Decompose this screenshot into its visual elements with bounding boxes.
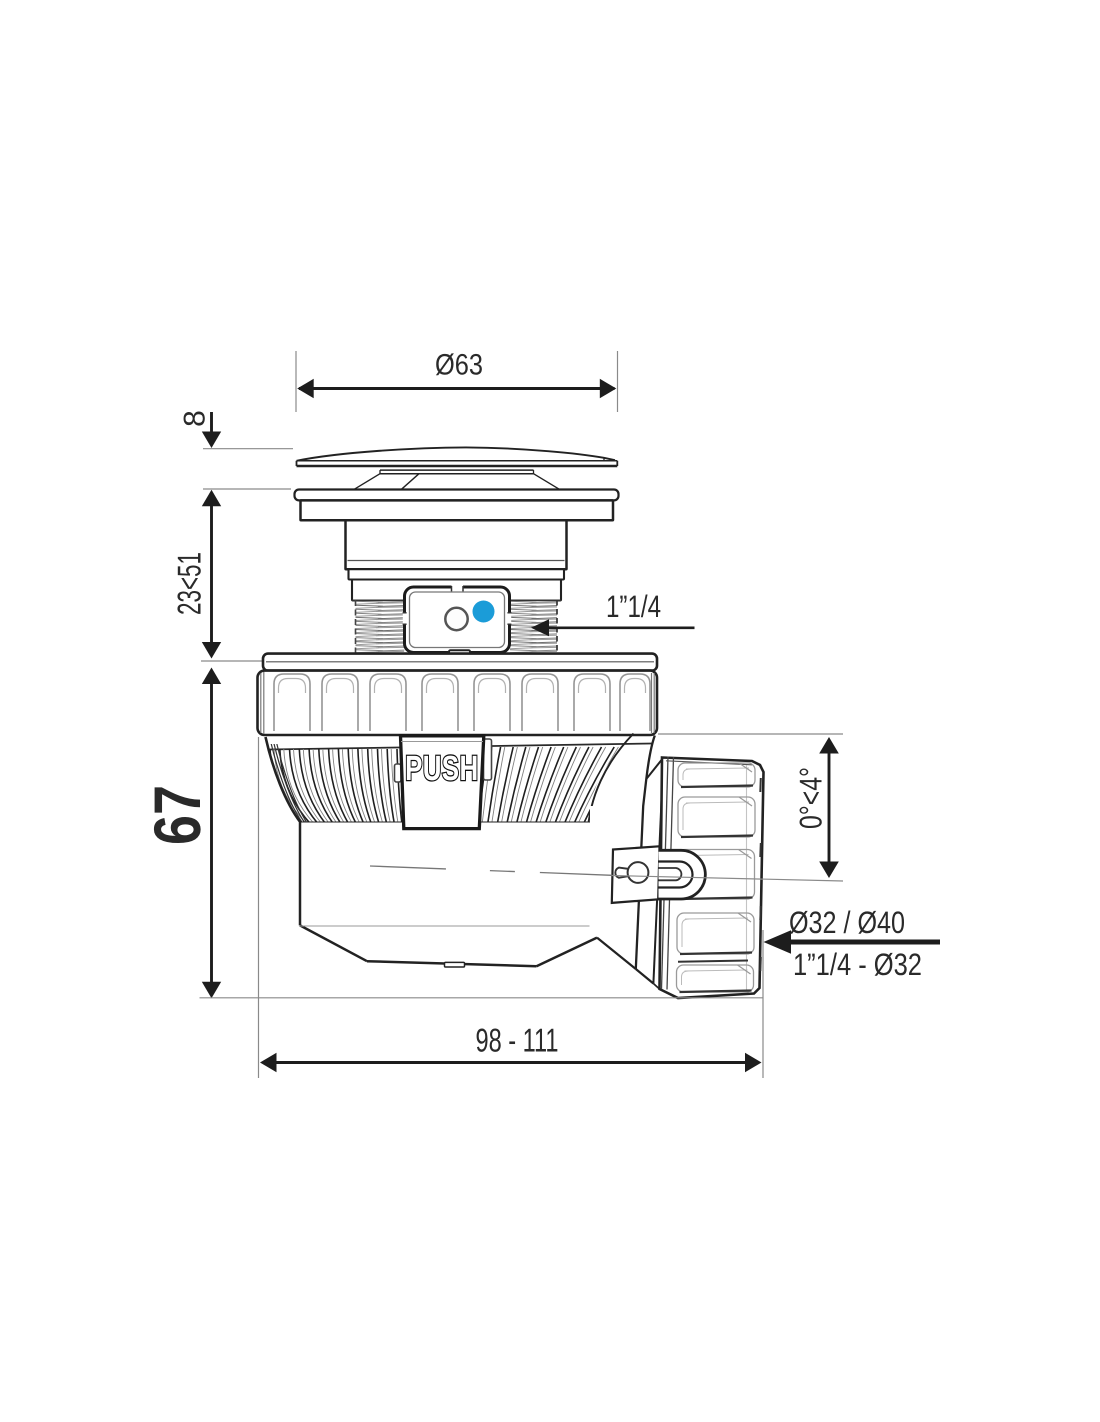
svg-text:67: 67: [140, 785, 214, 845]
svg-text:23<51: 23<51: [171, 552, 208, 615]
svg-text:0°<4°: 0°<4°: [793, 767, 829, 829]
svg-text:1”1/4: 1”1/4: [606, 589, 661, 624]
svg-text:8: 8: [179, 410, 212, 427]
svg-text:98 - 111: 98 - 111: [476, 1022, 559, 1059]
svg-text:Ø63: Ø63: [435, 349, 483, 382]
svg-text:1”1/4 - Ø32: 1”1/4 - Ø32: [793, 947, 922, 982]
svg-text:Ø32 / Ø40: Ø32 / Ø40: [789, 905, 905, 940]
svg-text:PUSH: PUSH: [405, 749, 478, 788]
